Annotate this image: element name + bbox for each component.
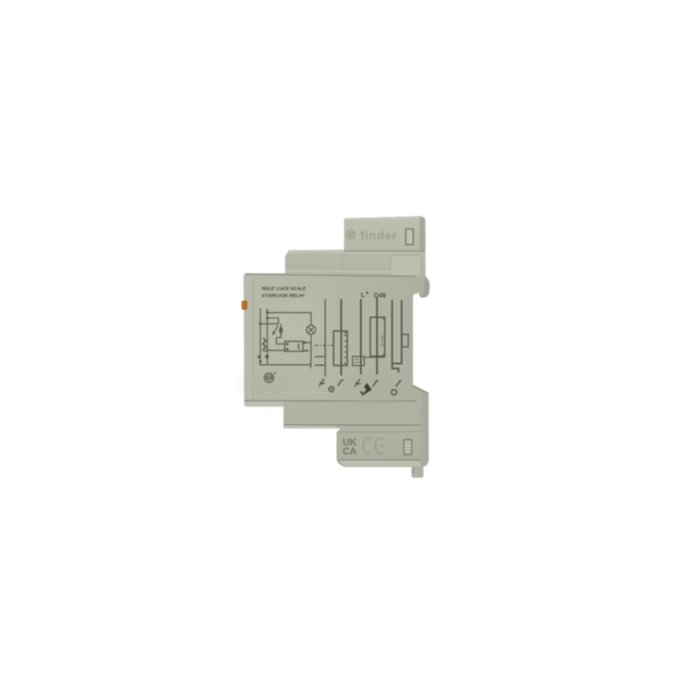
svg-text:L: L [361,292,365,299]
svg-text:STAIRCASE RELAY: STAIRCASE RELAY [262,293,306,298]
svg-text:RELE' LUCE SCALE: RELE' LUCE SCALE [262,286,307,291]
svg-text:finder: finder [361,231,398,243]
svg-text:CA: CA [343,447,357,458]
svg-text:Q46: Q46 [374,292,387,299]
svg-text:30 min: 30 min [380,335,385,347]
